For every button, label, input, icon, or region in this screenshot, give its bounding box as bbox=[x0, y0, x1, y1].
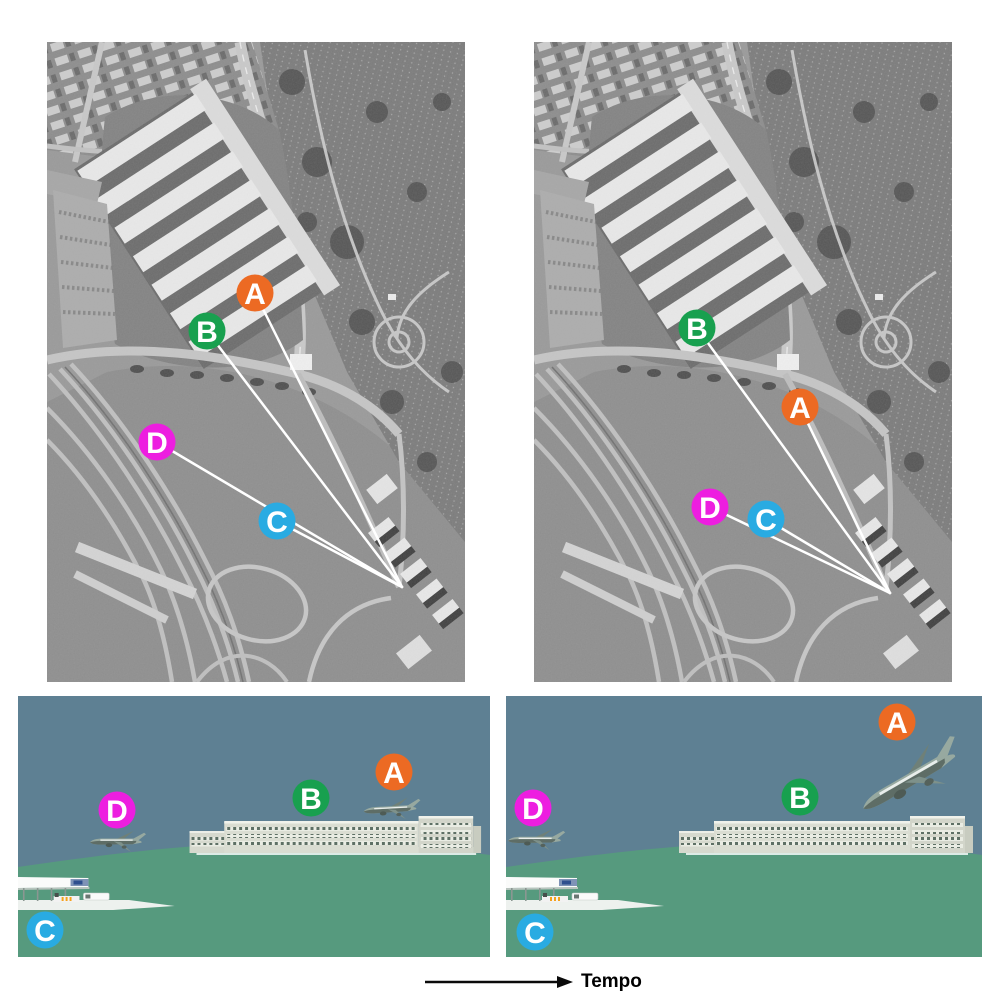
airplane-D bbox=[90, 831, 146, 852]
time-axis-label: Tempo bbox=[581, 972, 642, 991]
figure-canvas: ABDC BADC ABDC ABDC Tempo bbox=[0, 0, 1000, 1000]
marker-D: D bbox=[139, 424, 176, 461]
profile-scene-t1: ABDC bbox=[18, 696, 490, 957]
marker-B: B bbox=[782, 779, 819, 816]
marker-label: D bbox=[522, 793, 544, 826]
marker-D: D bbox=[692, 489, 729, 526]
annotation-overlay: BADC bbox=[534, 42, 952, 682]
sight-line-D bbox=[710, 507, 890, 593]
time-axis: Tempo bbox=[424, 972, 642, 991]
annotation-overlay: ABDC bbox=[47, 42, 465, 682]
annotation-overlay: ABDC bbox=[18, 696, 490, 957]
marker-label: B bbox=[686, 313, 708, 346]
marker-B: B bbox=[679, 310, 716, 347]
marker-label: A bbox=[383, 757, 405, 790]
sight-line-C bbox=[277, 521, 402, 587]
marker-label: C bbox=[755, 504, 777, 537]
aerial-map-t1: ABDC bbox=[47, 42, 465, 682]
marker-B: B bbox=[189, 313, 226, 350]
marker-C: C bbox=[517, 914, 554, 951]
marker-D: D bbox=[515, 790, 552, 827]
marker-A: A bbox=[782, 389, 819, 426]
marker-label: D bbox=[699, 492, 721, 525]
marker-label: C bbox=[524, 917, 546, 950]
profile-scene-t2: ABDC bbox=[506, 696, 982, 957]
marker-label: A bbox=[789, 392, 811, 425]
airplane-A bbox=[363, 797, 421, 821]
sight-line-B bbox=[697, 328, 890, 593]
marker-label: C bbox=[34, 915, 56, 948]
marker-B: B bbox=[293, 780, 330, 817]
airplane-D bbox=[508, 829, 565, 850]
marker-A: A bbox=[376, 754, 413, 791]
time-arrow-icon bbox=[424, 973, 574, 991]
marker-C: C bbox=[259, 503, 296, 540]
marker-label: D bbox=[106, 795, 128, 828]
annotation-overlay: ABDC bbox=[506, 696, 982, 957]
marker-C: C bbox=[27, 912, 64, 949]
marker-A: A bbox=[879, 704, 916, 741]
marker-label: B bbox=[196, 316, 218, 349]
airplane-A bbox=[852, 731, 973, 826]
marker-label: C bbox=[266, 506, 288, 539]
marker-A: A bbox=[237, 275, 274, 312]
marker-C: C bbox=[748, 501, 785, 538]
marker-label: B bbox=[789, 782, 811, 815]
marker-label: A bbox=[244, 278, 266, 311]
aerial-map-t2: BADC bbox=[534, 42, 952, 682]
marker-label: A bbox=[886, 707, 908, 740]
marker-label: B bbox=[300, 783, 322, 816]
marker-label: D bbox=[146, 427, 168, 460]
marker-D: D bbox=[99, 792, 136, 829]
sight-line-B bbox=[207, 331, 402, 587]
